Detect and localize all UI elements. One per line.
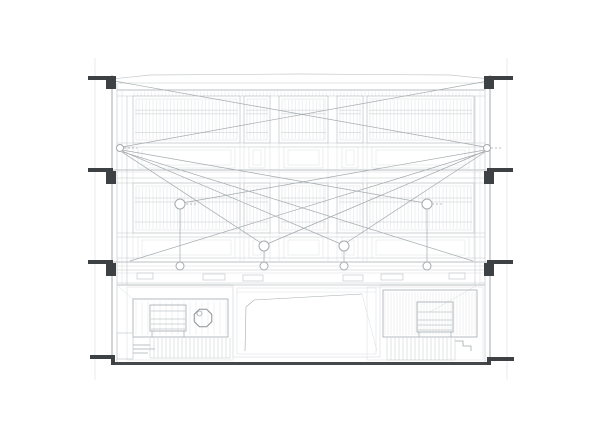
upper-node-circle	[175, 199, 185, 209]
bottom-node-circle	[340, 262, 348, 270]
bottom-node-circle	[260, 262, 268, 270]
upper-node-circle	[422, 199, 432, 209]
bottom-node-circle	[423, 262, 431, 270]
section-drawing-canvas	[0, 0, 600, 423]
architectural-section-page	[0, 0, 600, 423]
wall-node-circle	[484, 145, 491, 152]
building-section-drawing	[0, 0, 600, 423]
left-stairs-hatching	[150, 338, 230, 358]
bottom-node-circle	[176, 262, 184, 270]
mid-node-circle	[339, 241, 349, 251]
wall-node-circle	[117, 145, 124, 152]
mid-node-circle	[259, 241, 269, 251]
